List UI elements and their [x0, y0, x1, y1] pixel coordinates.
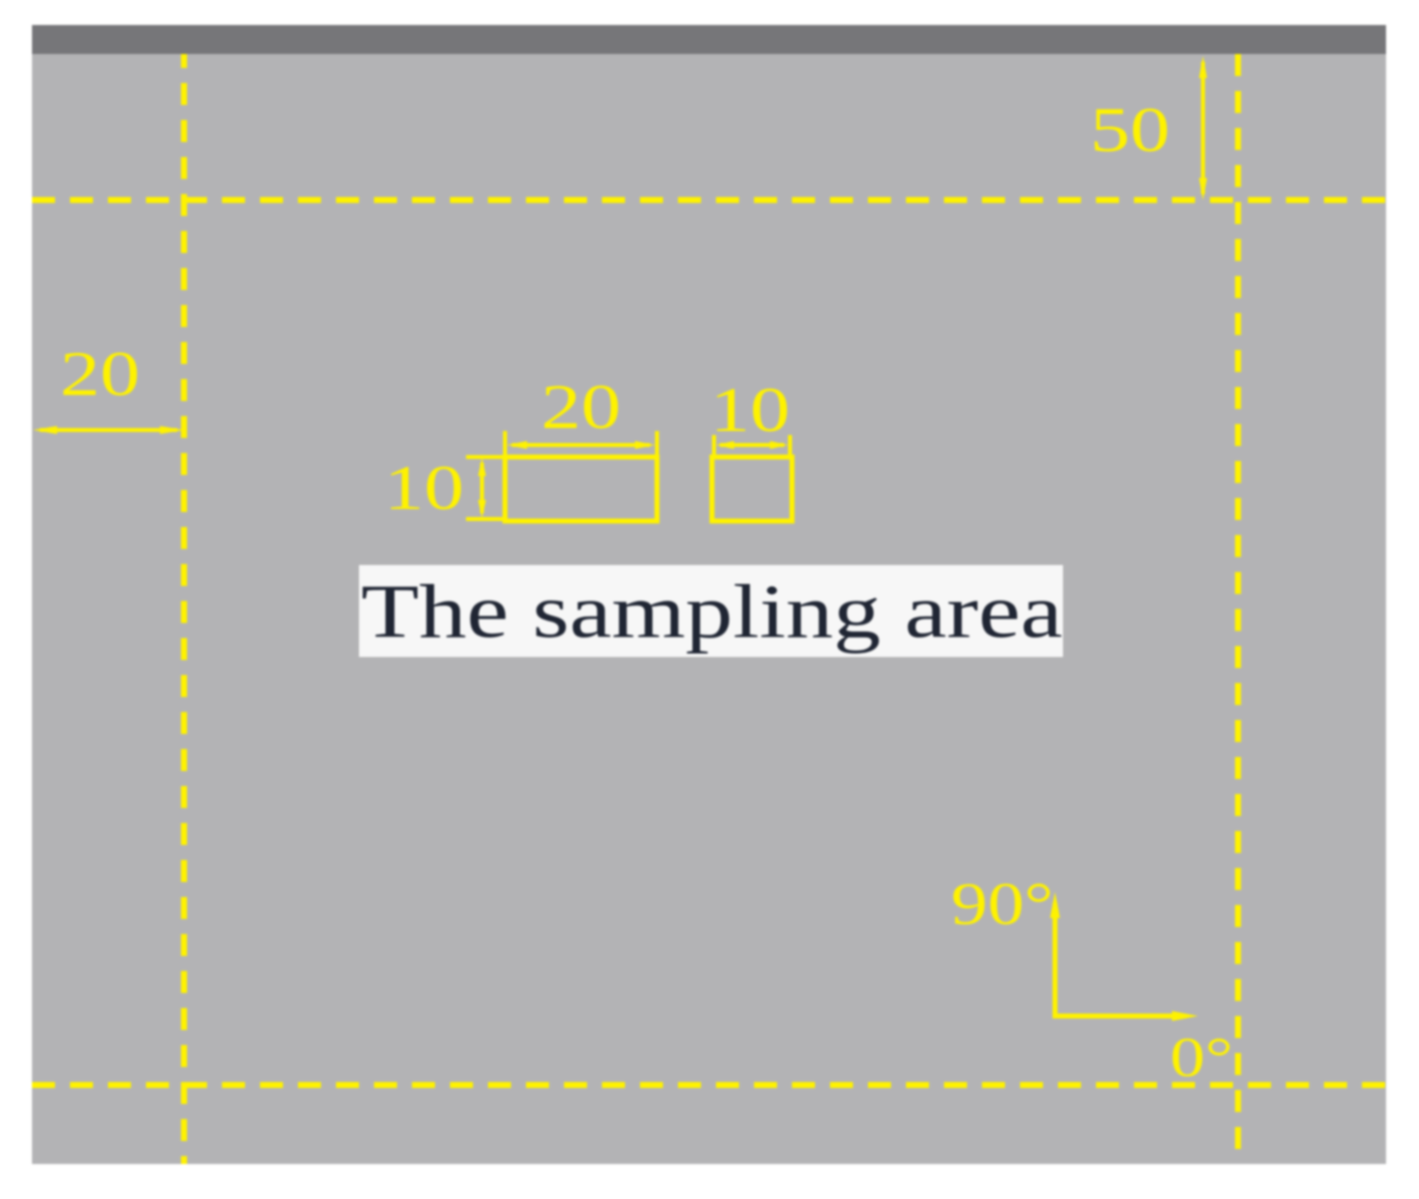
svg-text:10: 10	[384, 452, 464, 524]
svg-text:20: 20	[541, 371, 621, 443]
svg-text:50: 50	[1090, 94, 1170, 166]
svg-text:10: 10	[710, 374, 790, 446]
svg-text:0°: 0°	[1170, 1027, 1233, 1089]
svg-text:90°: 90°	[951, 871, 1053, 937]
svg-text:20: 20	[60, 338, 140, 410]
svg-text:The sampling area: The sampling area	[361, 569, 1063, 654]
